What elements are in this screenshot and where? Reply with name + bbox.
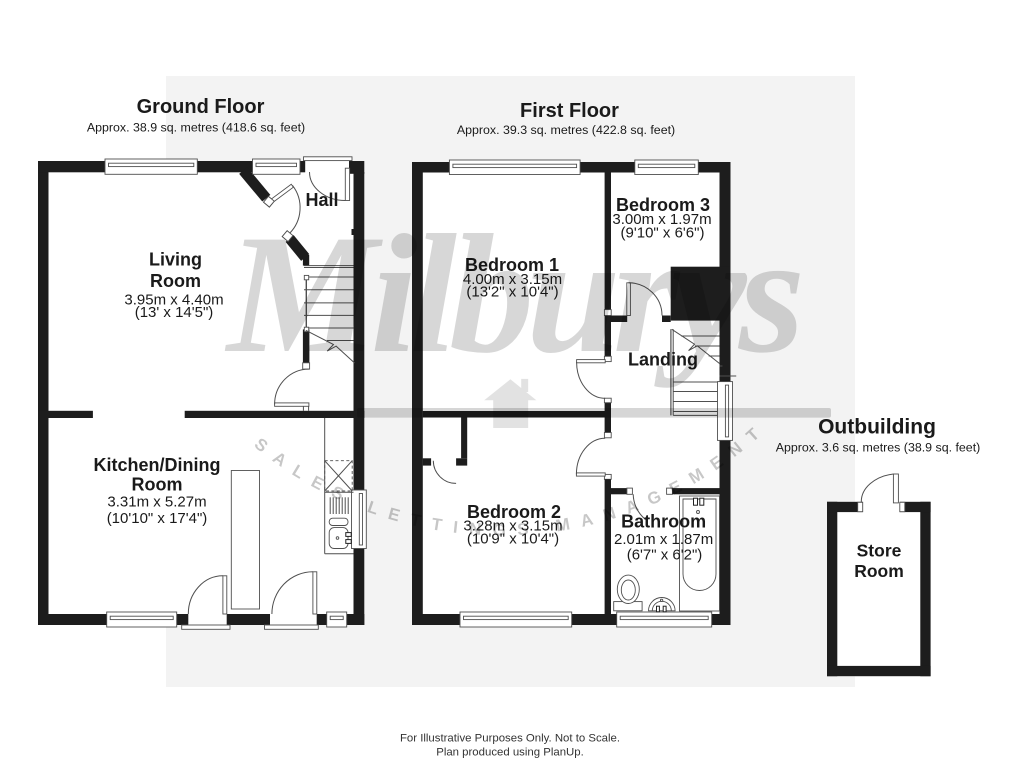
svg-text:Approx. 38.9 sq. metres (418.6: Approx. 38.9 sq. metres (418.6 sq. feet) [87, 121, 305, 135]
svg-text:(6'7" x 6'2"): (6'7" x 6'2") [627, 546, 703, 563]
svg-text:Ground Floor: Ground Floor [137, 96, 265, 118]
svg-text:2.01m x 1.87m: 2.01m x 1.87m [614, 531, 713, 548]
svg-text:Kitchen/Dining: Kitchen/Dining [94, 455, 221, 475]
svg-text:Room: Room [150, 271, 201, 291]
svg-text:Living: Living [149, 250, 202, 270]
svg-text:Approx. 39.3 sq. metres (422.8: Approx. 39.3 sq. metres (422.8 sq. feet) [457, 123, 675, 137]
svg-text:(10'10" x 17'4"): (10'10" x 17'4") [107, 510, 208, 527]
svg-text:Room: Room [132, 474, 183, 494]
svg-text:Store: Store [857, 540, 902, 560]
svg-text:For Illustrative Purposes Only: For Illustrative Purposes Only. Not to S… [400, 733, 620, 745]
svg-text:3.31m x 5.27m: 3.31m x 5.27m [107, 493, 206, 510]
svg-text:Room: Room [854, 561, 904, 581]
svg-text:Outbuilding: Outbuilding [818, 416, 936, 439]
svg-text:Plan produced using PlanUp.: Plan produced using PlanUp. [436, 747, 584, 759]
svg-text:First Floor: First Floor [520, 100, 619, 122]
svg-text:(13' x 14'5"): (13' x 14'5") [135, 304, 214, 321]
svg-text:Milburys: Milburys [224, 200, 805, 388]
svg-text:Approx. 3.6 sq. metres (38.9 s: Approx. 3.6 sq. metres (38.9 sq. feet) [776, 441, 981, 455]
